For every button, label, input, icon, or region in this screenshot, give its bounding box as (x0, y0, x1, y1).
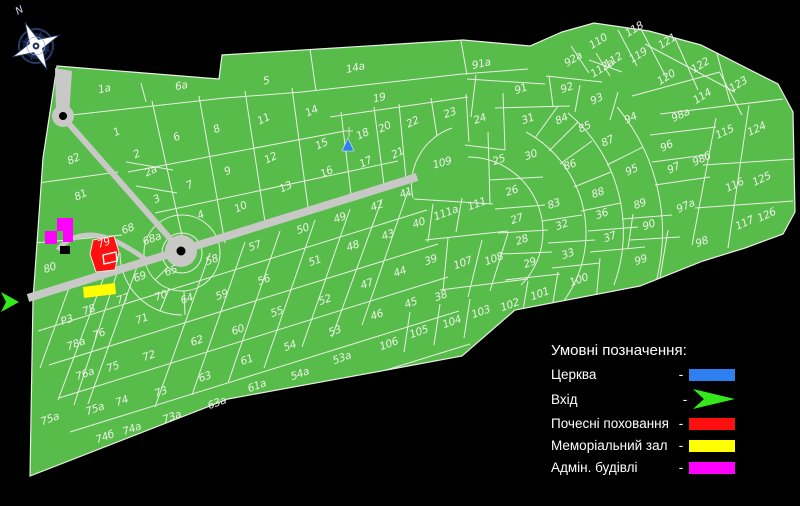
honorary-swatch (689, 418, 735, 430)
admin-swatch (689, 462, 735, 474)
church-swatch (689, 369, 735, 381)
roundabout-dot (177, 247, 186, 256)
legend-label-honorary: Почесні поховання (551, 416, 673, 431)
cemetery-map-screen: { "compass": { "label": "N" }, "legend":… (0, 0, 800, 506)
legend-panel: Умовні позначення: Церква - Вхід - Почес… (551, 342, 735, 482)
legend-row-entrance: Вхід - (551, 389, 735, 409)
legend-row-church: Церква - (551, 367, 735, 382)
legend-dash: - (673, 460, 689, 475)
legend-row-memorial: Меморіальний зал - (551, 438, 735, 453)
plot-label-1a: 1a (97, 82, 112, 96)
legend-label-memorial: Меморіальний зал (551, 438, 673, 453)
black-building (60, 246, 70, 254)
legend-dash: - (673, 367, 689, 382)
compass-north-label: N (14, 4, 26, 18)
admin-building-2 (45, 231, 57, 244)
legend-dash: - (673, 416, 689, 431)
legend-title: Умовні позначення: (551, 342, 735, 359)
entrance-arrow-icon (1, 292, 19, 312)
legend-label-admin: Адмін. будівлі (551, 460, 673, 475)
legend-label-entrance: Вхід (551, 392, 677, 407)
legend-row-honorary: Почесні поховання - (551, 416, 735, 431)
legend-label-church: Церква (551, 367, 673, 382)
memorial-swatch (689, 440, 735, 452)
gate-dot (59, 112, 67, 120)
legend-row-admin: Адмін. будівлі - (551, 460, 735, 475)
legend-dash: - (677, 392, 693, 407)
legend-dash: - (673, 438, 689, 453)
entrance-arrow-swatch (693, 389, 735, 409)
plot-label-6a: 6a (174, 79, 189, 93)
